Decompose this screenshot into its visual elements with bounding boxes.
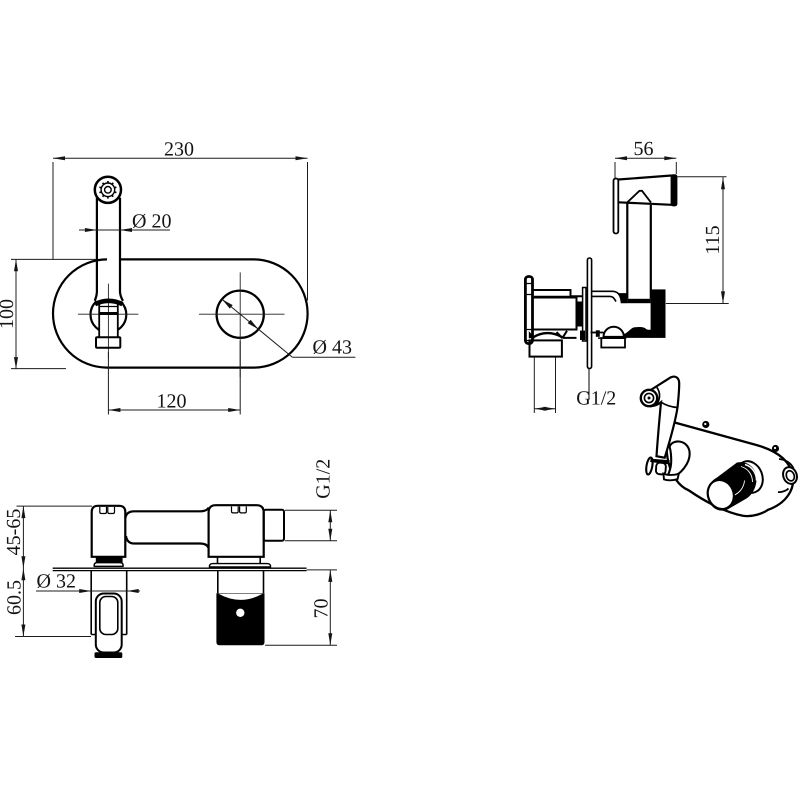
svg-text:G1/2: G1/2 [313, 459, 335, 499]
svg-text:45-65: 45-65 [3, 509, 25, 556]
svg-text:G1/2: G1/2 [576, 388, 616, 410]
svg-text:60.5: 60.5 [4, 580, 26, 615]
svg-text:100: 100 [0, 299, 18, 329]
svg-text:56: 56 [634, 138, 654, 160]
svg-text:Ø 20: Ø 20 [132, 211, 171, 233]
svg-text:230: 230 [164, 139, 194, 161]
svg-text:Ø 43: Ø 43 [313, 337, 352, 359]
svg-text:120: 120 [157, 390, 187, 412]
svg-text:115: 115 [702, 225, 724, 254]
svg-text:70: 70 [311, 599, 333, 619]
svg-text:Ø 32: Ø 32 [37, 571, 76, 593]
